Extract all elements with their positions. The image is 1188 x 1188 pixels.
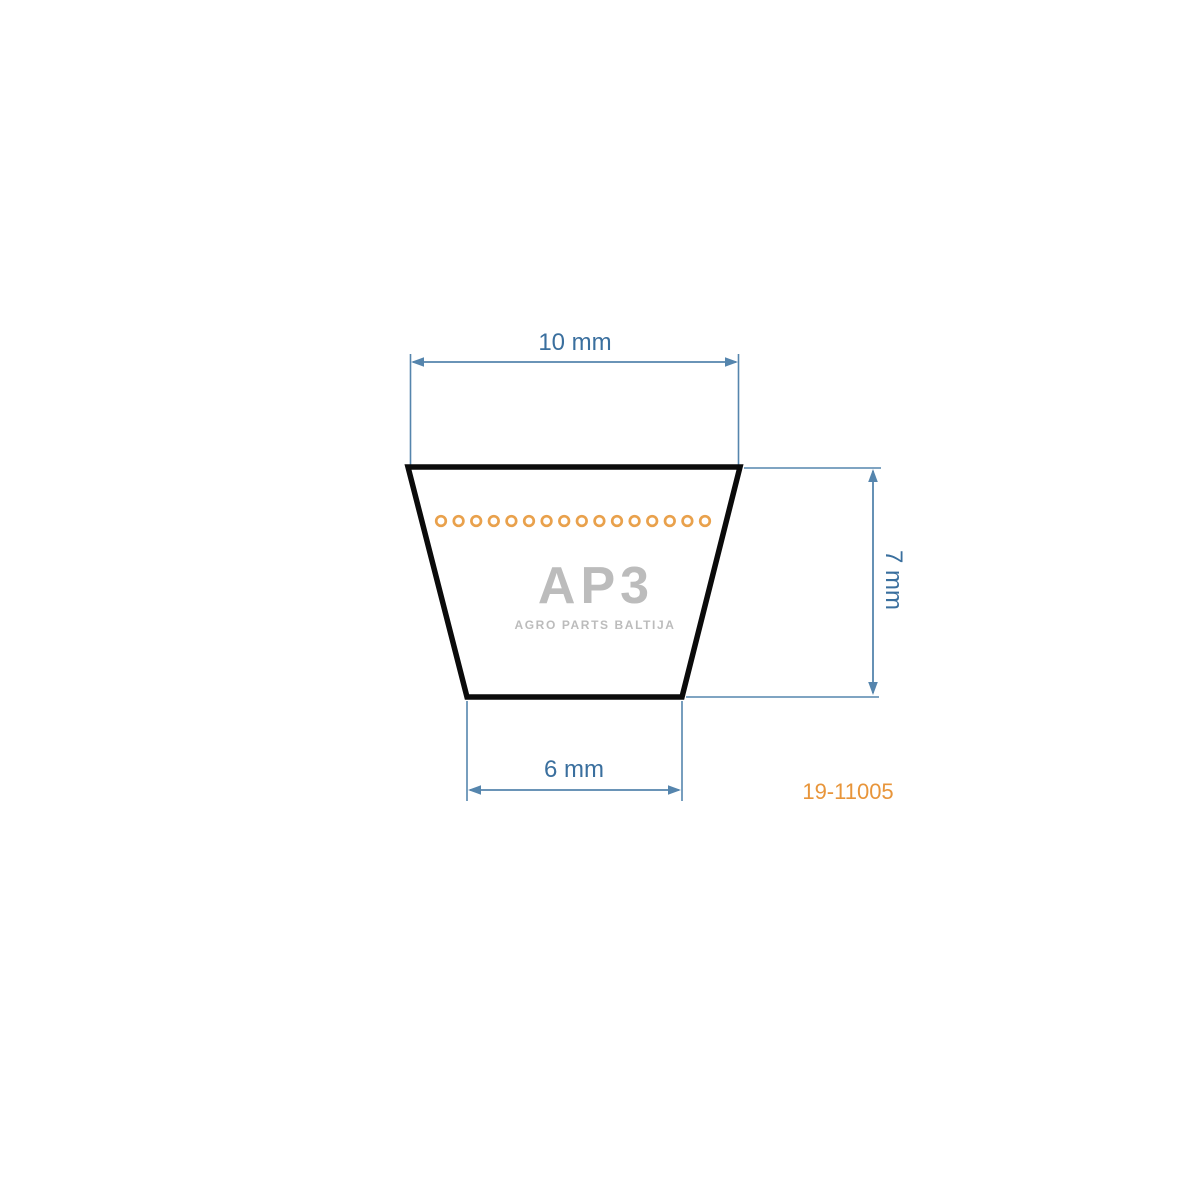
cord-circle [612,516,622,526]
part-number: 19-11005 [802,779,893,805]
brand-logo: AP3 [538,556,654,616]
cord-circle [542,516,552,526]
cord-circle [683,516,693,526]
arrowhead-left-icon [411,357,424,367]
arrowhead-right-icon [725,357,738,367]
arrowhead-down-icon [868,682,878,695]
cord-circle [559,516,569,526]
belt-cross-section-diagram: 10 mm 7 mm 6 mm 19-11005 AP3 AGRO PARTS … [0,0,1188,1188]
arrowhead-up-icon [868,469,878,482]
brand-tagline: AGRO PARTS BALTIJA [514,618,675,632]
cord-circle [524,516,534,526]
cord-circle [489,516,499,526]
cord-circle [630,516,640,526]
arrowhead-left-icon [468,785,481,795]
cord-circle [665,516,675,526]
height-label: 7 mm [879,550,907,610]
cord-circle [454,516,464,526]
top-width-label: 10 mm [538,329,611,357]
cord-circle [507,516,517,526]
cord-circle [577,516,587,526]
bottom-width-dimension [467,701,682,801]
top-width-dimension [411,354,739,465]
cord-circle [471,516,481,526]
cord-circle [595,516,605,526]
cord-circle [647,516,657,526]
arrowhead-right-icon [668,785,681,795]
cord-circle [700,516,710,526]
bottom-width-label: 6 mm [544,756,604,784]
cord-circle [436,516,446,526]
